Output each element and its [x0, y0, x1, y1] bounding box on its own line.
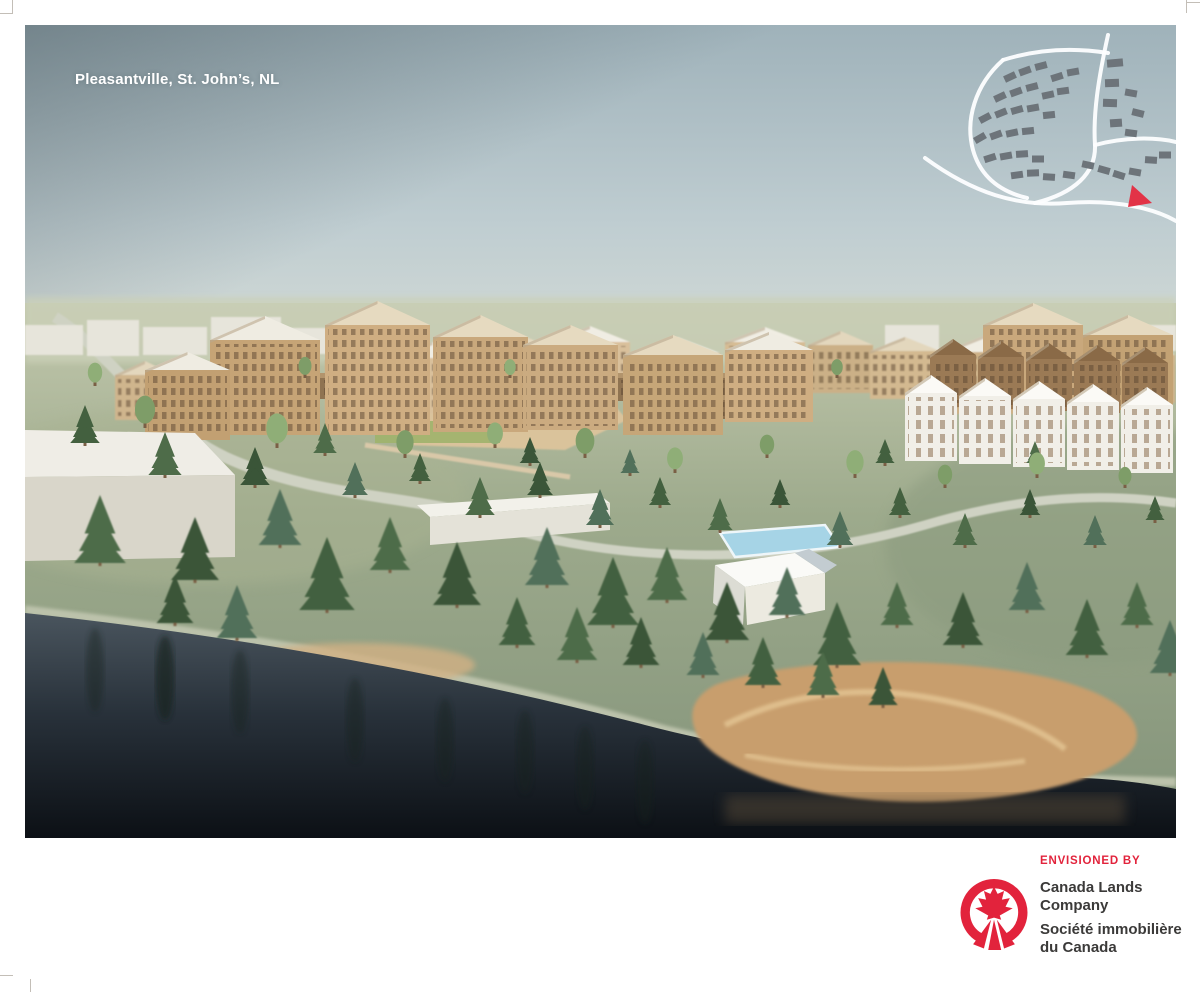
crop-mark: [12, 0, 13, 13]
poster-page: Pleasantville, St. John’s, NL The Future…: [0, 0, 1200, 992]
clc-name-en: Canada Lands Company: [1040, 879, 1182, 915]
clc-name-fr: Société immobilière du Canada: [1040, 921, 1182, 957]
clc-logo-icon: [958, 878, 1030, 950]
envisioned-by-label: ENVISIONED BY: [1040, 855, 1141, 867]
crop-mark: [1186, 0, 1187, 13]
crop-mark: [30, 979, 31, 992]
crop-mark: [0, 13, 13, 14]
crop-mark: [0, 975, 13, 976]
scene-illustration: [25, 25, 1176, 838]
model-render-photo: Pleasantville, St. John’s, NL: [25, 25, 1176, 838]
clc-logo-text: Canada Lands Company Société immobilière…: [1040, 879, 1182, 957]
location-caption: Pleasantville, St. John’s, NL: [75, 71, 279, 88]
crop-mark: [1187, 2, 1200, 3]
